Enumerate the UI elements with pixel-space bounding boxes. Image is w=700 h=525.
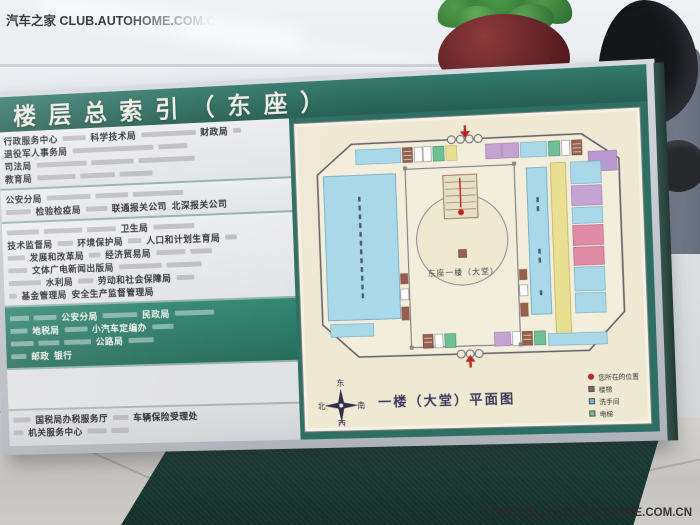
fine-print xyxy=(87,226,116,232)
fine-print xyxy=(138,156,195,163)
photo-scene: 楼层总索引（东座） 行政服务中心科学技术局财政局退役军人事务局司法局教育局公安分… xyxy=(0,0,700,525)
fine-print xyxy=(7,229,39,235)
legend-item: 洗手间 xyxy=(589,395,640,407)
legend-swatch-square xyxy=(589,398,595,404)
office-name: 水利局 xyxy=(46,275,74,289)
fine-print xyxy=(152,324,174,330)
stairs-icon xyxy=(401,307,409,321)
fine-print xyxy=(14,430,24,435)
office-name: 卫生局 xyxy=(120,221,148,235)
room-block xyxy=(575,292,606,313)
fine-print xyxy=(141,130,196,138)
room-block xyxy=(446,145,457,160)
fine-print xyxy=(95,192,128,198)
room-block xyxy=(423,147,431,162)
directory-band: 公安分局民政局地税局小汽车定编办公路局邮政银行 xyxy=(5,298,298,368)
room-block xyxy=(574,266,605,291)
fine-print xyxy=(8,268,27,274)
room-block xyxy=(331,323,374,337)
office-name: 财政局 xyxy=(200,124,228,138)
room-block xyxy=(520,141,547,157)
floor-plan-panel: 东座一楼（大堂） xyxy=(293,107,652,433)
fine-print xyxy=(128,337,153,343)
room-block xyxy=(355,148,401,165)
office-name: 国税局办税服务厅 xyxy=(35,411,108,426)
office-name: 检验检疫局 xyxy=(35,203,81,218)
office-name: 基金管理局 xyxy=(21,288,67,302)
room-block xyxy=(548,332,607,346)
watermark-top-left: 汽车之家 CLUB.AUTOHOME.COM.CN xyxy=(6,10,225,29)
fine-print xyxy=(72,145,153,154)
legend-swatch-square xyxy=(588,386,594,392)
directory-band: 国税局办税服务厅车辆保险受理处机关服务中心 xyxy=(8,402,300,447)
fine-print xyxy=(64,327,87,333)
legend-item: 楼梯 xyxy=(588,383,639,395)
legend-swatch-square xyxy=(589,410,595,416)
floor-plan-map: 东座一楼（大堂） xyxy=(298,112,645,378)
fine-print xyxy=(38,340,59,346)
legend-label: 电梯 xyxy=(599,408,613,419)
compass-north-label: 北 xyxy=(317,402,325,411)
fine-print xyxy=(80,172,115,178)
map-caption-row: 东 北 南 西 一楼（大堂）平面图 您所在的位置楼梯洗手间电梯 xyxy=(307,368,647,429)
fine-print xyxy=(190,248,212,254)
fine-print xyxy=(119,170,152,176)
fine-print xyxy=(156,249,185,255)
office-name: 地税局 xyxy=(32,324,60,338)
room-block xyxy=(571,185,602,206)
fine-print xyxy=(63,135,86,141)
room-block xyxy=(502,143,519,159)
fine-print xyxy=(13,417,30,422)
fine-print xyxy=(153,223,194,230)
fine-print xyxy=(128,238,142,243)
elevator-icon xyxy=(534,331,546,345)
fine-print xyxy=(176,275,194,281)
fine-print xyxy=(111,428,129,433)
room-block xyxy=(485,143,501,159)
fine-print xyxy=(6,209,31,215)
fine-print xyxy=(10,328,27,333)
fine-print xyxy=(87,428,106,433)
fine-print xyxy=(158,143,187,149)
office-name: 邮政 xyxy=(31,349,50,362)
fine-print xyxy=(233,128,241,133)
fine-print xyxy=(46,194,90,201)
fine-print xyxy=(9,280,41,286)
stairs-icon xyxy=(520,303,529,317)
office-name: 机关服务中心 xyxy=(28,425,83,439)
fine-print xyxy=(225,234,237,239)
directory: 行政服务中心科学技术局财政局退役军人事务局司法局教育局公安分局检验检疫局联通报关… xyxy=(0,118,301,446)
fine-print xyxy=(78,278,94,283)
restroom-icon xyxy=(401,289,409,300)
stairs-icon xyxy=(402,147,412,162)
office-name: 教育局 xyxy=(5,172,32,186)
fine-print xyxy=(86,206,107,212)
office-name: 劳动和社会保障局 xyxy=(98,271,172,286)
directory-band: 卫生局技术监督局环境保护局人口和计划生育局发展和改革局经济贸易局文体广电新闻出版… xyxy=(2,212,296,308)
elevator-icon xyxy=(433,146,444,161)
elevator-icon xyxy=(445,334,456,348)
legend-swatch-dot xyxy=(588,374,594,380)
fine-print xyxy=(37,174,75,181)
fine-print xyxy=(166,261,201,267)
fine-print xyxy=(119,263,162,270)
compass-west-label: 西 xyxy=(338,419,346,427)
compass-south-label: 南 xyxy=(357,400,365,410)
office-name: 司法局 xyxy=(4,159,31,173)
office-name: 小汽车定编办 xyxy=(92,321,147,336)
fine-print xyxy=(133,190,184,197)
restroom-icon xyxy=(520,285,528,296)
fine-print xyxy=(11,341,34,347)
office-name: 公安分局 xyxy=(61,310,98,324)
fine-print xyxy=(9,294,17,299)
office-name: 公路局 xyxy=(96,334,124,348)
stairs-icon xyxy=(400,273,408,284)
fine-print xyxy=(36,161,86,168)
office-name: 科学技术局 xyxy=(90,129,136,144)
office-name: 安全生产监督管理局 xyxy=(71,285,154,301)
fine-print xyxy=(34,315,57,321)
fine-print xyxy=(91,158,134,165)
office-name: 联通报关公司 xyxy=(111,199,167,214)
restroom-icon xyxy=(435,334,443,348)
fine-print xyxy=(175,310,214,316)
map-legend: 您所在的位置楼梯洗手间电梯 xyxy=(588,370,641,418)
watermark-bottom-right: 汽车之家 CLUB.AUTOHOME.COM.CN xyxy=(491,504,692,520)
room-block xyxy=(570,161,601,184)
board-body: 行政服务中心科学技术局财政局退役军人事务局司法局教育局公安分局检验检疫局联通报关… xyxy=(0,101,660,446)
fine-print xyxy=(64,339,91,345)
map-caption: 一楼（大堂）平面图 xyxy=(378,387,516,410)
office-name: 经济贸易局 xyxy=(105,247,151,262)
room-block xyxy=(572,207,603,224)
room-block xyxy=(494,332,510,346)
compass-rose: 东 北 南 西 xyxy=(317,376,365,427)
fine-print xyxy=(89,252,101,257)
stairs-icon xyxy=(519,269,527,280)
stairs-icon xyxy=(423,334,433,348)
fine-print xyxy=(10,316,29,322)
fine-print xyxy=(8,255,25,261)
stairs-icon xyxy=(522,331,533,345)
legend-item: 您所在的位置 xyxy=(588,370,639,382)
elevator-icon xyxy=(548,141,560,156)
office-name: 民政局 xyxy=(142,307,170,321)
legend-label: 洗手间 xyxy=(599,395,620,406)
compass-east-label: 东 xyxy=(336,377,344,387)
board-inner: 楼层总索引（东座） 行政服务中心科学技术局财政局退役军人事务局司法局教育局公安分… xyxy=(0,64,660,446)
directory-board: 楼层总索引（东座） 行政服务中心科学技术局财政局退役军人事务局司法局教育局公安分… xyxy=(0,59,669,455)
fine-print xyxy=(11,354,26,359)
legend-item: 电梯 xyxy=(589,407,640,418)
room-block xyxy=(573,246,604,265)
legend-label: 楼梯 xyxy=(599,383,613,394)
fine-print xyxy=(113,415,129,420)
stairs-icon xyxy=(458,249,466,257)
office-name: 车辆保险受理处 xyxy=(133,409,198,423)
fine-print xyxy=(44,228,82,234)
office-name: 银行 xyxy=(54,349,73,362)
restroom-icon xyxy=(561,140,570,155)
service-hall-block xyxy=(323,174,400,321)
fine-print xyxy=(57,241,72,246)
room-block xyxy=(414,147,422,162)
room-block xyxy=(573,224,604,245)
legend-label: 您所在的位置 xyxy=(598,370,639,381)
office-name: 北深报关公司 xyxy=(171,197,227,212)
fine-print xyxy=(102,312,137,318)
stairs-icon xyxy=(571,140,582,155)
directory-band xyxy=(7,360,299,409)
